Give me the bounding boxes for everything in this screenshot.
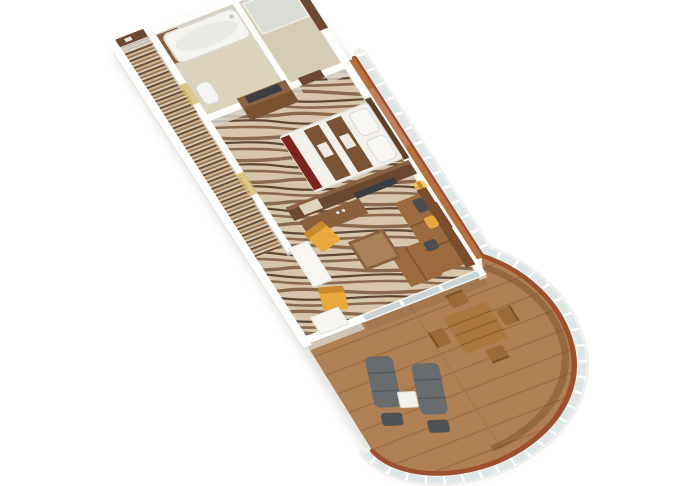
- outdoor-side-table: [397, 391, 418, 407]
- lounger-footstool-1: [380, 412, 404, 426]
- lounger-footstool-2: [427, 419, 451, 433]
- suite-floorplan-svg: [0, 0, 680, 486]
- floorplan-screenshot: [0, 0, 680, 486]
